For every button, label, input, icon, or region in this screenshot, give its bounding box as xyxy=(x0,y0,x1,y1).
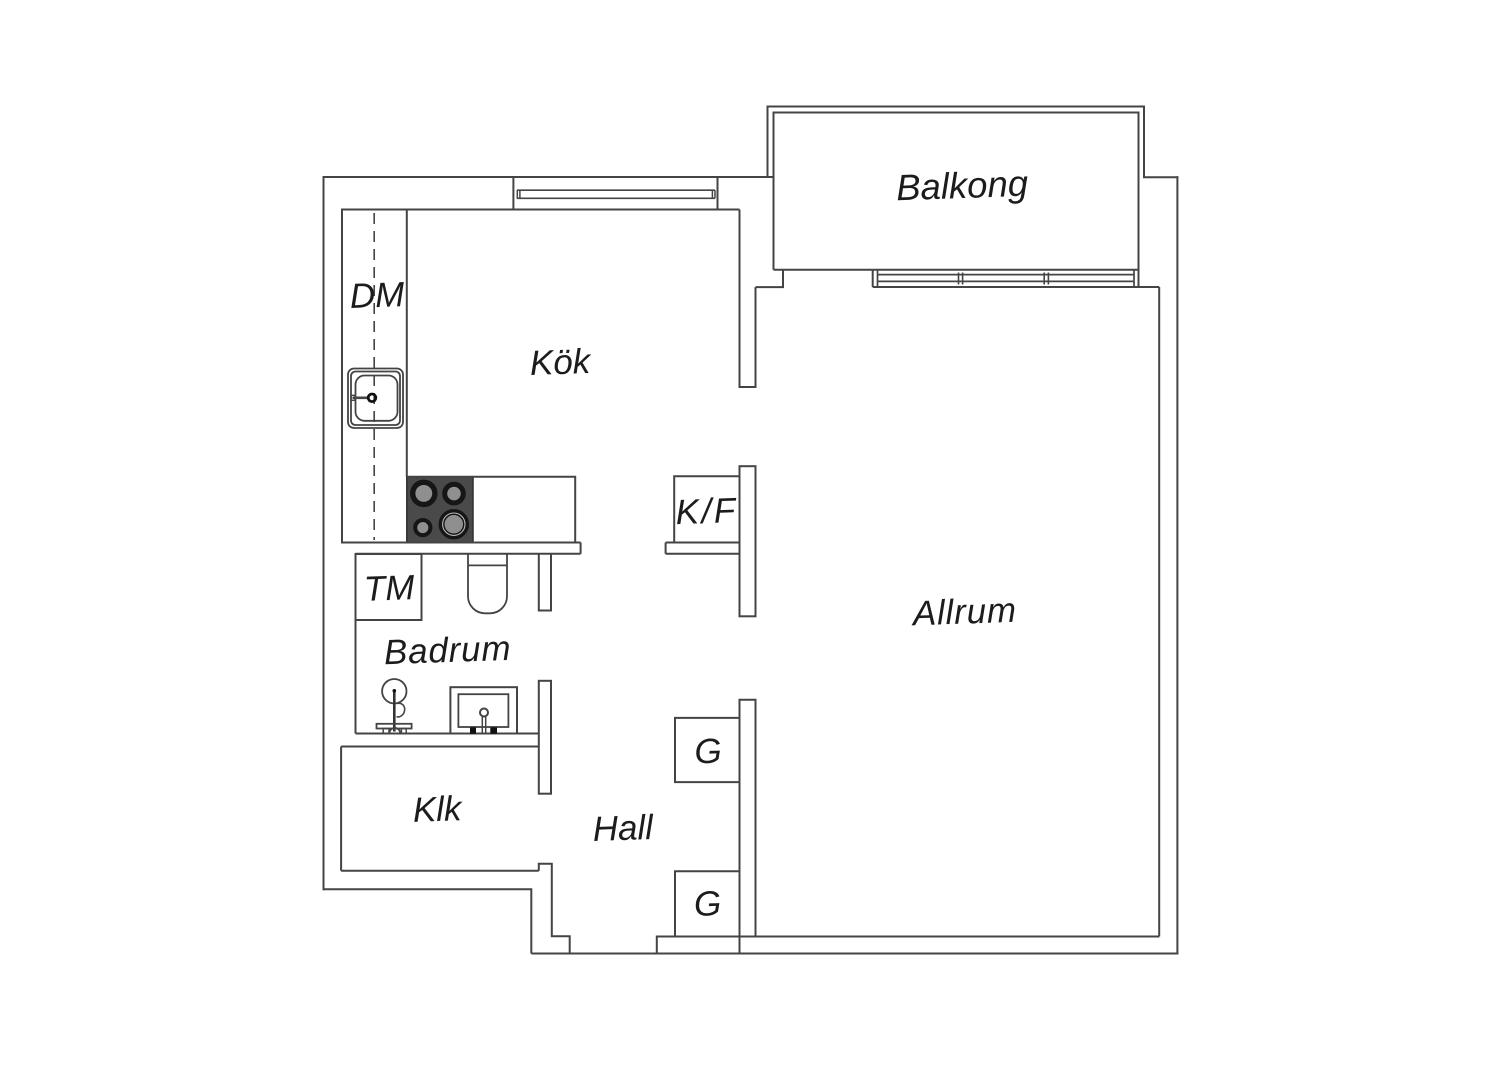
svg-text:Balkong: Balkong xyxy=(895,163,1028,209)
svg-text:DM: DM xyxy=(349,275,406,316)
svg-text:G: G xyxy=(694,732,723,772)
svg-text:TM: TM xyxy=(363,568,416,609)
svg-text:Hall: Hall xyxy=(592,808,655,849)
svg-text:Allrum: Allrum xyxy=(910,591,1017,634)
svg-text:Badrum: Badrum xyxy=(383,629,512,672)
svg-text:K/F: K/F xyxy=(675,491,738,532)
svg-text:Kök: Kök xyxy=(529,342,592,383)
svg-text:G: G xyxy=(693,884,722,924)
svg-text:Klk: Klk xyxy=(412,789,463,830)
